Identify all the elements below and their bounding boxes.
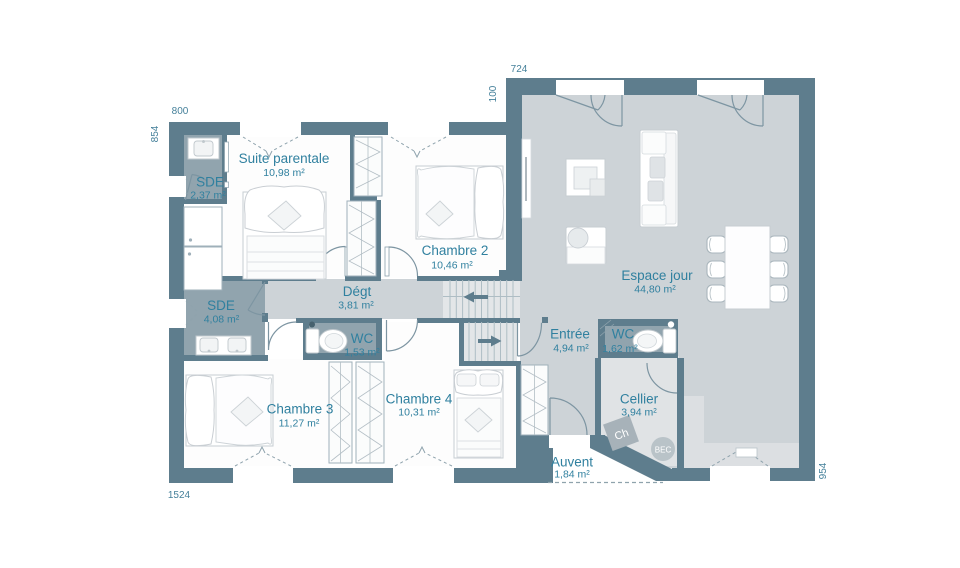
svg-text:SDE: SDE [207, 298, 235, 313]
svg-text:100: 100 [488, 85, 499, 102]
svg-text:800: 800 [172, 106, 189, 117]
svg-text:954: 954 [818, 462, 829, 479]
svg-text:Chambre 2: Chambre 2 [422, 243, 489, 258]
svg-text:Espace jour: Espace jour [621, 268, 693, 283]
svg-text:3,94 m²: 3,94 m² [621, 407, 657, 419]
svg-text:10,46 m²: 10,46 m² [431, 260, 473, 272]
svg-text:Auvent: Auvent [551, 455, 593, 470]
svg-text:44,80 m²: 44,80 m² [634, 284, 676, 296]
svg-text:Suite parentale: Suite parentale [239, 151, 330, 166]
svg-text:1,53 m²: 1,53 m² [344, 347, 380, 359]
svg-text:1524: 1524 [168, 490, 191, 501]
svg-text:4,08 m²: 4,08 m² [204, 314, 240, 326]
svg-text:10,31 m²: 10,31 m² [398, 407, 440, 419]
svg-text:10,98 m²: 10,98 m² [263, 167, 305, 179]
svg-text:724: 724 [511, 64, 528, 75]
svg-text:SDE: SDE [196, 175, 224, 190]
svg-text:BEC: BEC [655, 446, 672, 455]
svg-text:Cellier: Cellier [620, 392, 659, 407]
svg-text:2,37 m²: 2,37 m² [190, 190, 226, 202]
svg-text:WC: WC [351, 331, 374, 346]
svg-text:854: 854 [150, 125, 161, 142]
svg-text:3,81 m²: 3,81 m² [338, 300, 374, 312]
svg-text:1,62 m²: 1,62 m² [602, 343, 638, 355]
svg-text:Chambre 3: Chambre 3 [267, 402, 334, 417]
svg-text:11,27 m²: 11,27 m² [279, 418, 320, 430]
svg-text:1,84 m²: 1,84 m² [554, 469, 590, 481]
svg-text:Chambre 4: Chambre 4 [386, 392, 453, 407]
svg-text:WC: WC [612, 327, 635, 342]
svg-text:Dégt: Dégt [343, 284, 372, 299]
svg-text:4,94 m²: 4,94 m² [553, 343, 589, 355]
svg-text:Entrée: Entrée [550, 327, 590, 342]
